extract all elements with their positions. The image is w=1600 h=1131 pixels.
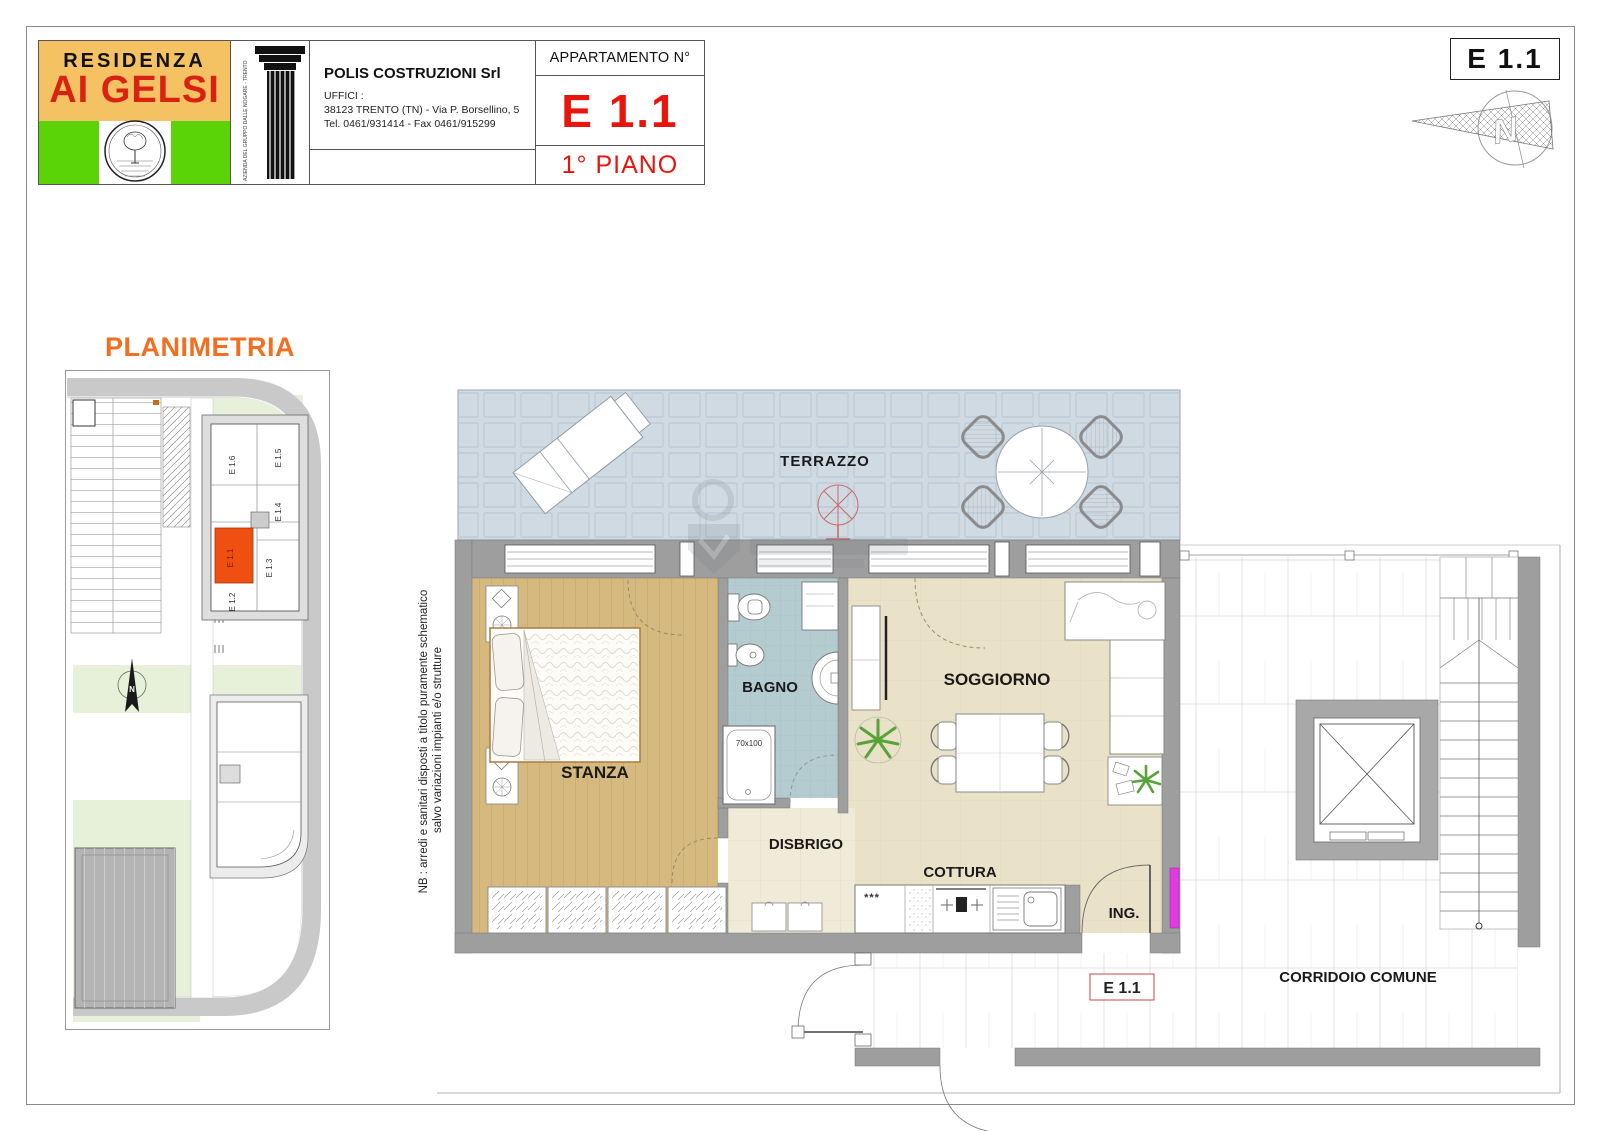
site-unit-label: E 1.6	[228, 455, 237, 474]
north-label: N	[129, 685, 135, 694]
bed	[490, 628, 640, 762]
electrical-riser	[1170, 868, 1179, 928]
bedroom-label: STANZA	[561, 763, 629, 782]
site-unit-label: E 1.2	[228, 592, 237, 611]
site-ramp	[163, 407, 190, 527]
bath-cabinet	[802, 582, 838, 630]
kitchen-counter: ***	[855, 885, 1065, 933]
site-building-b	[210, 695, 308, 878]
site-building-c	[75, 848, 175, 1008]
site-unit-label: E 1.3	[265, 558, 274, 577]
compass: N	[1412, 90, 1553, 168]
floor-plan: TERRAZZO	[418, 388, 1560, 1131]
shower: 70x100	[723, 726, 775, 804]
staircase	[1440, 557, 1518, 929]
unit-tag-label: E 1.1	[1103, 980, 1140, 997]
drawing-layer: E 1.6 E 1.5 E 1.4 E 1.3 E 1.1 E 1.2 N N	[0, 0, 1600, 1131]
bathroom-label: BAGNO	[742, 679, 798, 696]
hall-label: DISBRIGO	[769, 836, 844, 853]
kitchen-label: COTTURA	[923, 864, 996, 881]
site-unit-label: E 1.5	[274, 448, 283, 467]
side-table	[1108, 757, 1162, 805]
corridor-label: CORRIDOIO COMUNE	[1279, 969, 1437, 986]
site-building-units: E 1.6 E 1.5 E 1.4 E 1.3 E 1.1 E 1.2	[202, 415, 308, 620]
site-unit-label: E 1.4	[274, 502, 283, 521]
living-label: SOGGIORNO	[944, 670, 1051, 689]
entrance-label: ING.	[1109, 905, 1140, 922]
disclaimer-note: NB : arredi e sanitari disposti a titolo…	[418, 587, 444, 894]
compass-needle	[1412, 101, 1553, 149]
terrace: TERRAZZO	[458, 388, 1180, 540]
site-unit-label-highlight: E 1.1	[226, 548, 235, 567]
elevator	[1296, 700, 1438, 860]
bidet	[728, 644, 764, 666]
sink-kitchen	[993, 888, 1061, 930]
toilet	[728, 594, 770, 621]
shower-size-label: 70x100	[736, 739, 763, 748]
site-parking	[71, 398, 161, 633]
fridge-stars-label: ***	[864, 892, 880, 904]
terrace-label: TERRAZZO	[780, 453, 870, 470]
unit-tag: E 1.1	[1090, 974, 1154, 1000]
site-plan: E 1.6 E 1.5 E 1.4 E 1.3 E 1.1 E 1.2 N	[66, 371, 330, 1030]
